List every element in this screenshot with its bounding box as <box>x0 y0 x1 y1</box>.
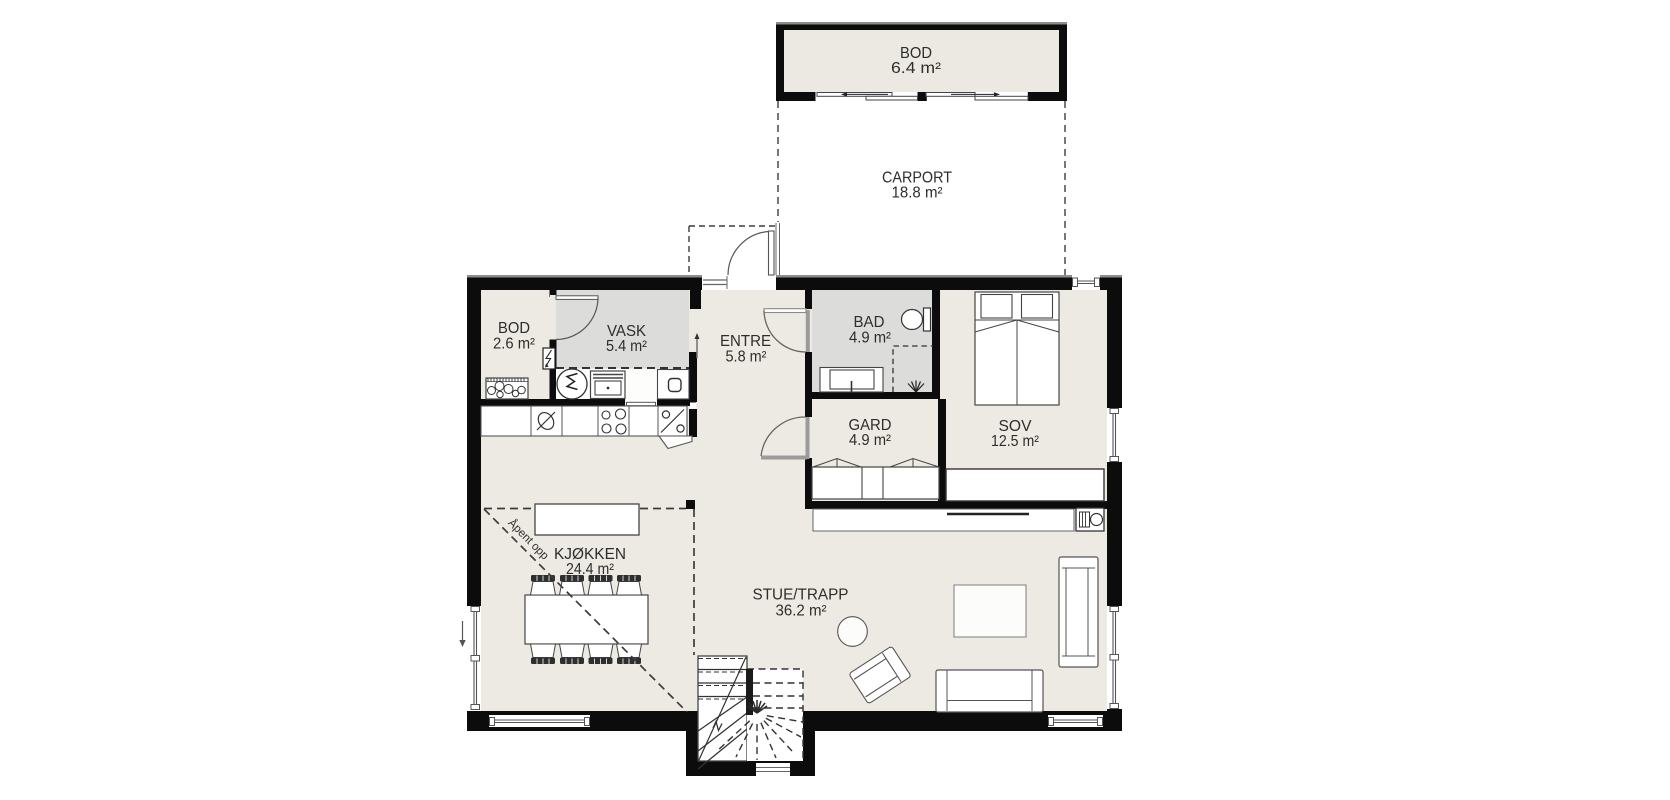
svg-text:5.8 m²: 5.8 m² <box>726 349 767 366</box>
svg-text:5.4 m²: 5.4 m² <box>606 338 647 355</box>
svg-text:BAD: BAD <box>854 314 885 331</box>
svg-text:4.9 m²: 4.9 m² <box>849 330 891 347</box>
svg-text:ENTRE: ENTRE <box>720 333 771 350</box>
svg-text:BOD: BOD <box>498 320 530 337</box>
svg-text:6.4 m²: 6.4 m² <box>891 60 941 77</box>
svg-text:2.6 m²: 2.6 m² <box>493 336 535 353</box>
svg-text:12.5 m²: 12.5 m² <box>991 433 1039 450</box>
svg-text:24.4 m²: 24.4 m² <box>566 561 614 578</box>
svg-text:4.9 m²: 4.9 m² <box>849 432 891 449</box>
svg-text:STUE/TRAPP: STUE/TRAPP <box>753 587 849 604</box>
svg-text:36.2 m²: 36.2 m² <box>776 603 827 620</box>
svg-text:18.8 m²: 18.8 m² <box>892 185 943 202</box>
